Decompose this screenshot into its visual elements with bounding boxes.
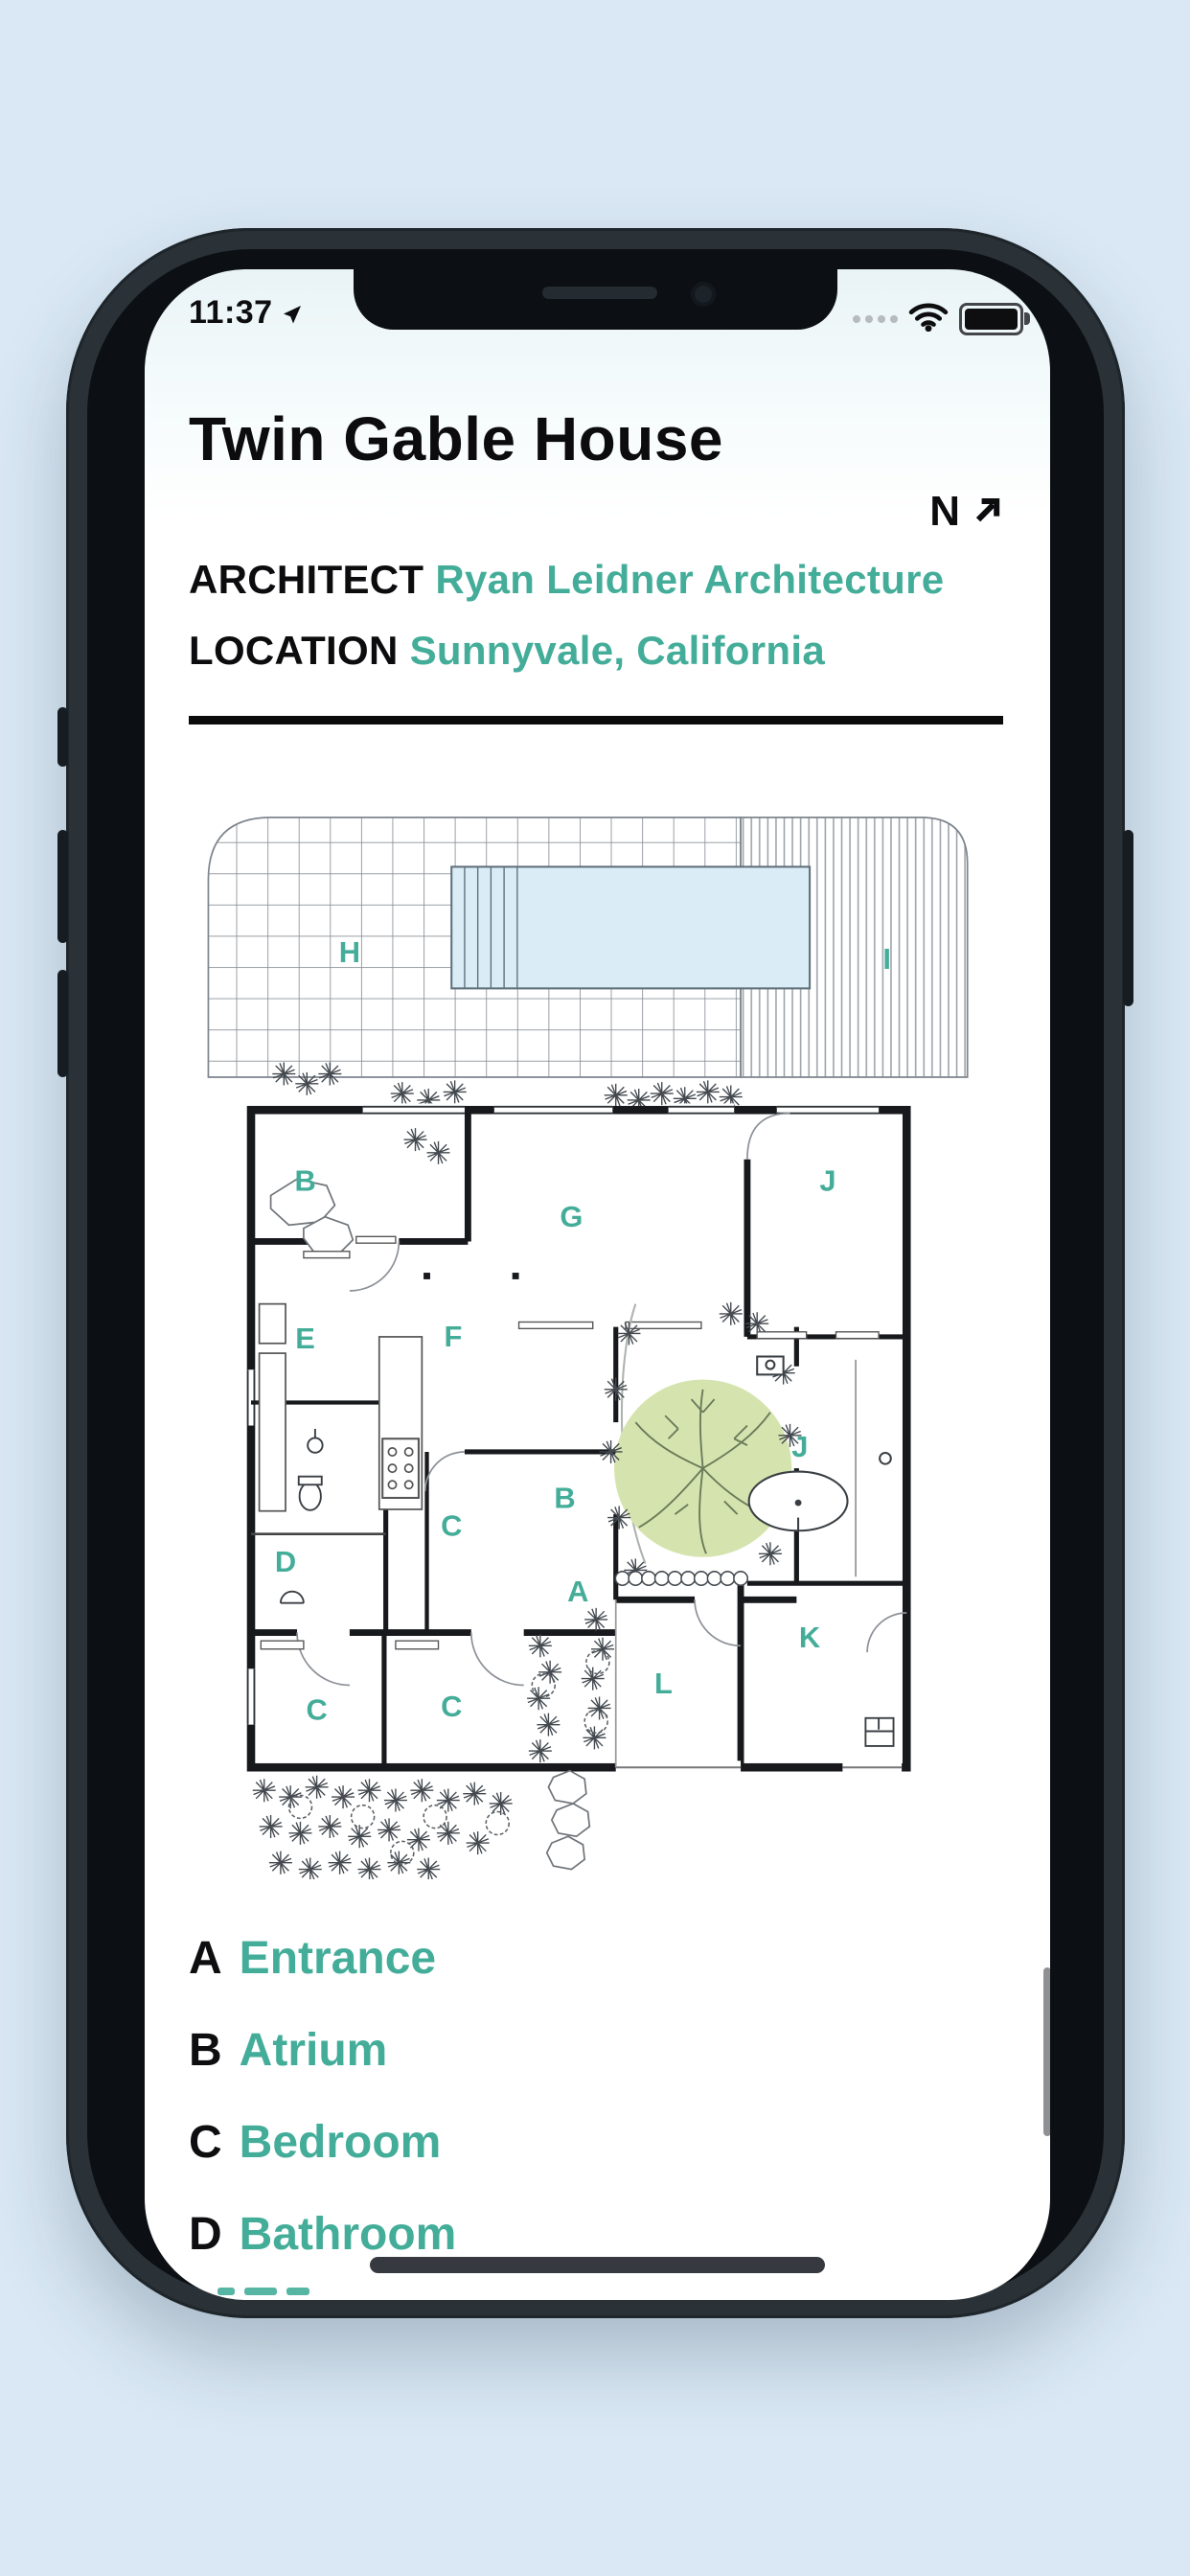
speaker-grille	[542, 287, 657, 299]
notch	[354, 269, 837, 330]
plan-label: K	[799, 1621, 820, 1654]
architect-value: Ryan Leidner Architecture	[435, 557, 944, 602]
legend-letter: C	[189, 2116, 222, 2169]
divider-rule	[189, 716, 1003, 724]
pool	[451, 866, 810, 988]
garage-fixtures	[865, 1718, 893, 1746]
column-dot	[513, 1273, 519, 1279]
legend-item-entrance: A Entrance	[189, 1932, 436, 1985]
floor-plan: H I B G J E F B J C D A C C L K	[205, 811, 977, 1879]
plan-label: B	[554, 1481, 575, 1514]
legend-item-atrium: B Atrium	[189, 2024, 387, 2077]
plan-label: F	[445, 1320, 463, 1353]
status-bar-left: 11:37	[189, 294, 304, 332]
compass-indicator: N	[929, 488, 1004, 536]
plan-label: C	[306, 1692, 327, 1726]
scrollbar-thumb[interactable]	[1043, 1967, 1050, 2136]
page: 11:37 Twin Gable House	[0, 0, 1190, 2576]
legend-letter: B	[189, 2024, 222, 2077]
battery-icon	[959, 303, 1023, 335]
plan-label: J	[819, 1163, 835, 1197]
volume-down-button	[57, 970, 68, 1077]
partial-next-legend-item	[217, 2288, 309, 2295]
architect-label: ARCHITECT	[189, 557, 423, 602]
legend-name: Bathroom	[240, 2208, 457, 2261]
power-button	[1123, 830, 1133, 1006]
location-services-icon	[281, 303, 304, 326]
architect-row: ARCHITECT Ryan Leidner Architecture	[189, 557, 944, 603]
plan-label: I	[882, 942, 891, 976]
mute-switch	[57, 707, 68, 767]
location-value: Sunnyvale, California	[410, 628, 825, 673]
plan-label: C	[441, 1690, 462, 1723]
plan-label: H	[339, 935, 360, 969]
plan-label: A	[567, 1575, 588, 1608]
status-time: 11:37	[189, 294, 273, 332]
signal-dots-icon	[853, 315, 898, 323]
plan-label: G	[560, 1200, 583, 1233]
legend-letter: A	[189, 1932, 222, 1985]
column-dot	[423, 1273, 430, 1279]
phone-frame: 11:37 Twin Gable House	[66, 228, 1125, 2318]
plan-label: C	[441, 1508, 462, 1542]
plan-label: L	[654, 1667, 673, 1700]
legend-item-bedroom: C Bedroom	[189, 2116, 441, 2169]
home-indicator[interactable]	[370, 2257, 825, 2273]
status-bar-right	[853, 302, 1023, 336]
plan-label: B	[294, 1163, 315, 1197]
location-label: LOCATION	[189, 628, 399, 673]
legend-name: Entrance	[240, 1932, 436, 1985]
legend-letter: D	[189, 2208, 222, 2261]
page-title: Twin Gable House	[189, 403, 723, 474]
plan-label: J	[791, 1430, 808, 1463]
volume-up-button	[57, 830, 68, 943]
legend-item-bathroom: D Bathroom	[189, 2208, 456, 2261]
wifi-icon	[908, 302, 949, 336]
north-east-arrow-icon	[970, 493, 1004, 532]
plan-label: D	[275, 1545, 296, 1578]
app-screen: 11:37 Twin Gable House	[145, 269, 1050, 2300]
plan-label: E	[295, 1322, 315, 1355]
legend-name: Atrium	[240, 2024, 388, 2077]
front-garden	[253, 1771, 590, 1879]
compass-letter: N	[929, 488, 960, 536]
legend-name: Bedroom	[240, 2116, 442, 2169]
location-row: LOCATION Sunnyvale, California	[189, 628, 825, 674]
front-camera	[691, 282, 716, 307]
